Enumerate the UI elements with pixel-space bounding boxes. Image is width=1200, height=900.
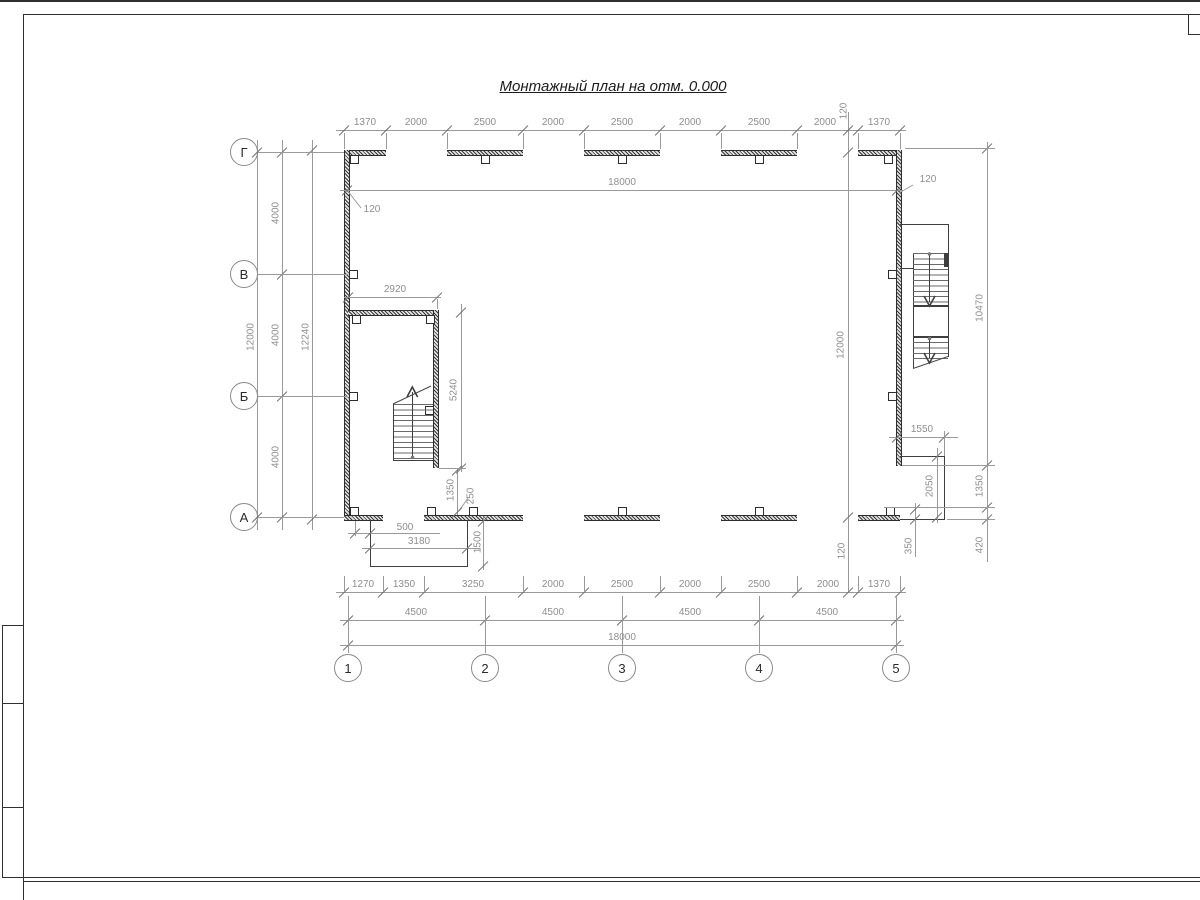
extension-line [258,274,348,275]
extension-line [523,133,524,149]
extension-line [447,133,448,149]
dim-label: 3250 [462,579,484,590]
stair2-landing-edge [900,268,913,269]
extension-line [424,576,425,591]
joint-tab [755,155,764,164]
extension-line [439,468,466,469]
extension-line [584,133,585,149]
joint-tab [888,270,897,279]
joint-tab [755,507,764,516]
dim-label: 2500 [611,579,633,590]
axis-row-G: Г [230,138,258,166]
dim-label: 1370 [354,117,376,128]
dim-label: 120 [839,103,850,120]
stair1-left-edge [393,404,394,461]
extension-line [344,133,345,149]
joint-tab [426,315,435,324]
extension-line [258,517,344,518]
wall-stair-enclosure-right [433,310,439,468]
extension-line [386,133,387,149]
dim-label: 1350 [446,479,457,501]
dim-line-stair1-width [344,297,441,298]
extension-line [905,148,995,149]
extension-line [721,133,722,149]
extension-line [896,596,897,653]
dim-label: 12000 [836,331,847,359]
dim-label: 120 [364,204,381,215]
dim-label: 350 [904,538,915,555]
dim-label: 3180 [408,536,430,547]
joint-tab [481,155,490,164]
stair2-path-line-upper [929,254,930,302]
extension-line [523,576,524,591]
wall-stair-enclosure-top [348,310,437,316]
joint-tab [349,392,358,401]
axis-col-1: 1 [334,654,362,682]
stair2-upper-treads [913,253,948,306]
dim-label: 2000 [679,579,701,590]
dim-label: 2050 [925,475,936,497]
joint-tab [350,507,359,516]
extension-line [944,431,945,456]
dim-label: 5240 [449,379,460,401]
frame-margin-div1 [2,625,23,626]
dim-label: 4000 [271,324,282,346]
dim-label: 18000 [608,177,636,188]
porch1-left-edge [370,520,371,566]
extension-line [258,152,344,153]
dim-label: 4500 [679,607,701,618]
dim-label: 500 [397,522,414,533]
dim-label: 120 [920,174,937,185]
dim-line-left-bays [282,140,283,530]
extension-line [344,576,345,591]
porch2-bottom-edge [900,519,945,520]
floor-plan-sheet: Монтажный план на отм. 0.000 [0,0,1200,900]
axis-row-V: В [230,260,258,288]
dim-label: 1370 [868,117,890,128]
extension-line [348,596,349,653]
dim-line-stair1-wall [461,304,462,472]
dim-label: 12000 [246,323,257,351]
dim-line-right-overall [987,142,988,562]
frame-left [23,14,24,900]
stair2-lower-treads [913,342,948,359]
joint-tab [469,507,478,516]
extension-line [584,576,585,591]
extension-line [383,576,384,591]
axis-col-3: 3 [608,654,636,682]
dim-label: 1550 [911,424,933,435]
dim-label: 1350 [975,475,986,497]
dim-label: 250 [466,488,477,505]
frame-margin-line [2,625,3,877]
frame-corner-box-bottom [1188,34,1200,35]
dim-line-inner-vertical [848,112,849,592]
stair-annotations [0,0,1200,900]
dim-label: 2000 [542,117,564,128]
extension-line [660,133,661,149]
joint-tab [349,270,358,279]
dim-line-top-row [336,130,906,131]
dim-label: 1270 [352,579,374,590]
dim-label: 1370 [868,579,890,590]
drawing-title: Монтажный план на отм. 0.000 [500,78,727,95]
dim-line-left-overall [257,140,258,530]
stair2-mid-landing-bottom [913,336,948,338]
extension-line [622,596,623,653]
stair1-treads [393,404,433,461]
stair2-mid-landing-top [913,305,948,307]
extension-line [947,519,995,520]
dim-line-porch2-width [889,437,958,438]
axis-col-2: 2 [471,654,499,682]
axis-col-5: 5 [882,654,910,682]
extension-line [485,596,486,653]
dim-label: 2500 [474,117,496,128]
frame-margin-div2 [2,703,23,704]
dim-label: 2000 [405,117,427,128]
dim-label: 4500 [542,607,564,618]
joint-tab [350,155,359,164]
wall-top-corner-right [858,150,900,156]
extension-line [355,521,356,536]
dim-label: 1350 [393,579,415,590]
axis-row-B: Б [230,382,258,410]
frame-corner-box-top [1188,14,1189,34]
extension-line [759,596,760,653]
frame-margin-div3 [2,807,23,808]
joint-tab [352,315,361,324]
joint-tab [427,507,436,516]
stair2-right-edge [948,224,949,357]
extension-line [660,576,661,591]
dim-label: 2000 [814,117,836,128]
dim-label: 4000 [271,446,282,468]
joint-tab [618,155,627,164]
dim-line-porch1-offset [348,533,440,534]
joint-tab [618,507,627,516]
extension-line [900,133,901,149]
extension-line [902,465,995,466]
dim-label: 4500 [405,607,427,618]
extension-line [437,299,438,309]
joint-tab [884,155,893,164]
stair1-bottom-edge [393,460,433,461]
dim-label: 2000 [817,579,839,590]
dim-line-left-outer [312,140,313,530]
axis-row-A: А [230,503,258,531]
dim-label: 120 [837,543,848,560]
wall-left [344,150,350,520]
extension-line [258,396,348,397]
dim-label: 10470 [975,294,986,322]
porch1-bottom-edge [370,566,468,567]
dim-line-top-overall [340,190,903,191]
extension-line [900,576,901,591]
dim-label: 2500 [748,579,770,590]
titleblock-top-line2 [23,881,1200,882]
extension-line [721,576,722,591]
dim-label: 4000 [271,202,282,224]
titleblock-top-line [2,877,1200,878]
wall-right [896,150,902,466]
porch2-top-edge [900,456,945,457]
dim-line-porch2-offset [915,503,916,557]
joint-tab [888,392,897,401]
frame-top [23,14,1200,15]
stair1-path-line [412,392,413,457]
dim-label: 2920 [384,284,406,295]
porch1-right-edge [467,520,468,566]
extension-line [858,576,859,591]
axis-col-4: 4 [745,654,773,682]
stair2-wall-stub [944,253,948,267]
dim-label: 2500 [748,117,770,128]
dim-label: 420 [975,537,986,554]
dim-label: 2000 [542,579,564,590]
extension-line [797,133,798,149]
stair2-path-line-lower [929,339,930,358]
extension-line [797,576,798,591]
extension-line [884,507,995,508]
joint-tab [886,507,895,516]
dim-label: 2500 [611,117,633,128]
dim-line-stair1-gap [457,468,458,515]
dim-label: 1500 [473,531,484,553]
dim-line-porch1-width [362,548,480,549]
dim-line-porch2-depth [937,448,938,523]
dim-label: 12240 [301,323,312,351]
dim-label: 2000 [679,117,701,128]
stair2-top-edge [900,224,948,225]
sheet-top-edge [0,0,1200,2]
extension-line [858,133,859,149]
dim-label: 4500 [816,607,838,618]
